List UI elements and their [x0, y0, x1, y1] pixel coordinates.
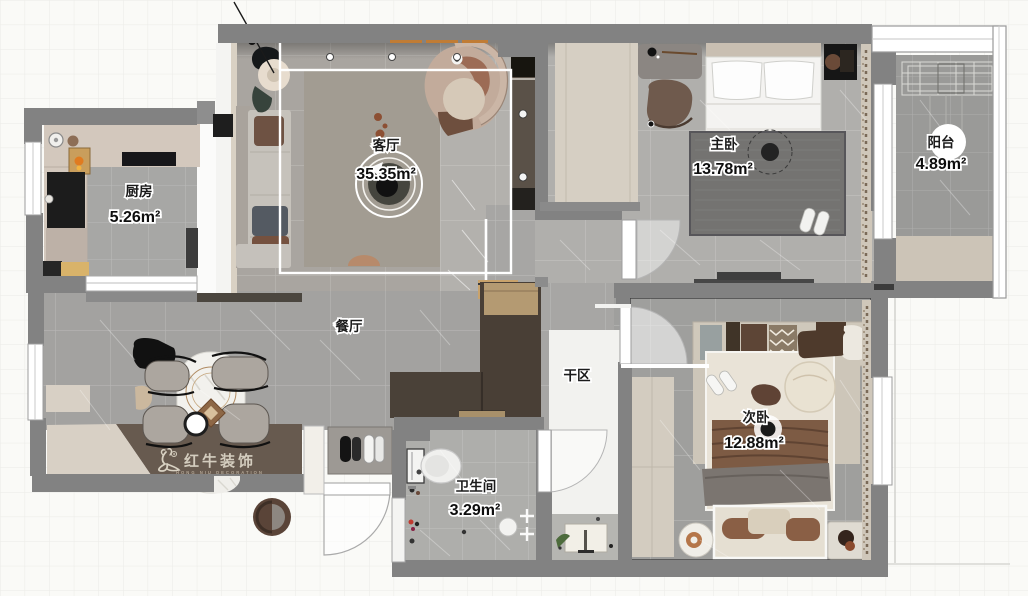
- svg-text:次卧: 次卧: [743, 409, 771, 425]
- svg-text:卫生间: 卫生间: [456, 478, 497, 494]
- svg-text:红牛装饰: 红牛装饰: [184, 452, 256, 470]
- svg-text:厨房: 厨房: [126, 183, 153, 199]
- svg-text:干区: 干区: [564, 368, 592, 383]
- svg-text:12.88m²: 12.88m²: [724, 435, 784, 452]
- svg-text:35.35m²: 35.35m²: [356, 166, 416, 183]
- svg-text:阳台: 阳台: [928, 134, 955, 150]
- svg-text:HONG NIU DECORATION: HONG NIU DECORATION: [176, 470, 264, 475]
- svg-text:3.29m²: 3.29m²: [450, 502, 501, 519]
- svg-text:主卧: 主卧: [711, 136, 739, 152]
- svg-text:5.26m²: 5.26m²: [110, 209, 161, 226]
- svg-text:客厅: 客厅: [372, 137, 400, 153]
- svg-text:13.78m²: 13.78m²: [693, 161, 753, 178]
- svg-text:餐厅: 餐厅: [335, 318, 363, 334]
- svg-text:4.89m²: 4.89m²: [916, 156, 967, 173]
